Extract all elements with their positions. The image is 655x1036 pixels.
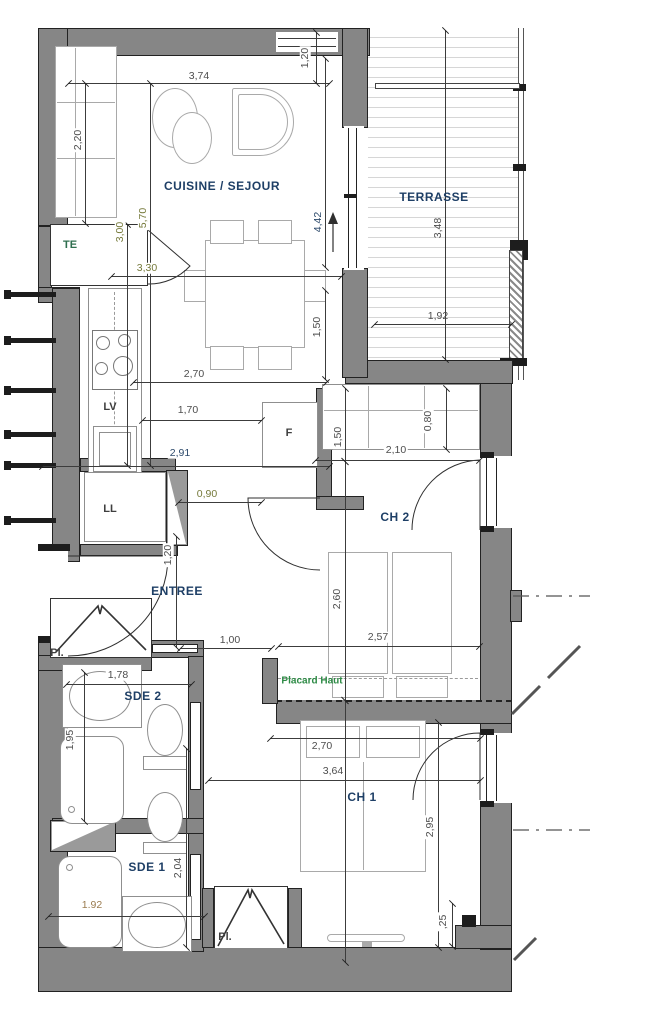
facade-fin-cap — [4, 290, 11, 299]
facade-fin — [8, 292, 56, 297]
sofa-cushion-line — [57, 158, 115, 159]
room-label-entree: ENTREE — [151, 584, 203, 598]
facade-fin-cap — [4, 430, 11, 439]
dim-192-terrasse: 1,92 — [426, 311, 450, 322]
dim-192-sde1: 1.92 — [80, 900, 104, 911]
dim-260: 2,60 — [332, 587, 343, 611]
pillow — [366, 726, 420, 758]
facade-fin — [8, 432, 56, 437]
dim-295: 2,95 — [425, 815, 436, 839]
room-label-sde1: SDE 1 — [128, 860, 165, 874]
dim-374: 3,74 — [187, 71, 211, 82]
toilet-bowl-sde2 — [147, 704, 183, 756]
tv-console — [327, 934, 405, 942]
wall-pl-ch1-right — [288, 888, 302, 948]
section-diagonal-mark — [514, 938, 536, 960]
wall-facade-fins-base — [52, 288, 80, 562]
dim-line-204 — [186, 748, 187, 948]
direction-arrow-head — [328, 212, 338, 224]
dim-570: 5,70 — [138, 206, 149, 230]
burner — [95, 362, 108, 375]
room-label-sde2: SDE 2 — [124, 689, 161, 703]
wall-placard-left-stub — [262, 658, 278, 704]
railing-hatch — [509, 250, 523, 360]
toilet-tank-sde2 — [143, 756, 187, 770]
wardrobe-shelf-line — [324, 410, 478, 411]
room-label-ch1: CH 1 — [347, 790, 376, 804]
room-label-terrasse: TERRASSE — [399, 190, 468, 204]
dim-204: 2,04 — [173, 856, 184, 880]
floor-plan: CUISINE / SEJOUR TERRASSE CH 2 ENTREE SD… — [0, 0, 655, 1036]
window-top-frame — [278, 38, 336, 39]
dim-line-330 — [111, 276, 342, 277]
dim-100: 1,00 — [218, 635, 242, 646]
dim-line-442 — [325, 58, 326, 268]
dim-080: 0,80 — [423, 409, 434, 433]
bed-center-line — [363, 762, 364, 870]
bed-headboard — [396, 676, 448, 698]
label-pl-entree: Pl. — [50, 647, 63, 659]
chair — [210, 346, 244, 370]
window-ch1-frame — [486, 735, 487, 801]
dim-442: 4,42 — [313, 210, 324, 234]
tv-console-foot — [362, 942, 372, 947]
railing-post — [513, 164, 526, 171]
wall-corner-block — [462, 915, 476, 927]
dim-line-192-terrasse — [374, 324, 512, 325]
dim-120-entree: 1,20 — [163, 543, 174, 567]
dim-line-100 — [180, 648, 272, 649]
dim-line-570 — [150, 83, 151, 466]
chair — [210, 220, 244, 244]
entrance-jamb — [38, 544, 70, 551]
pouf — [172, 112, 212, 164]
dim-line-220 — [85, 83, 86, 224]
bed-single — [328, 552, 388, 674]
sofa-cushion-line — [57, 102, 115, 103]
washbasin-sde1 — [128, 902, 186, 948]
wall-corner-step — [455, 925, 512, 949]
bed-single — [392, 552, 452, 674]
room-label-ch2: CH 2 — [380, 510, 409, 524]
wall-ch2-door-stub — [316, 496, 364, 510]
dim-195: 1,95 — [65, 728, 76, 752]
window-ch2-frame — [496, 458, 497, 526]
facade-fin-cap — [4, 386, 11, 395]
dim-257: 2,57 — [366, 632, 390, 643]
terrace-bench — [375, 83, 520, 89]
dim-170: 1,70 — [176, 405, 200, 416]
label-lv: LV — [103, 401, 116, 413]
dim-line-300 — [127, 224, 128, 466]
facade-fin-cap — [4, 461, 11, 470]
burner — [96, 336, 110, 350]
dim-220: 2,20 — [73, 128, 84, 152]
bay-window-frame — [356, 128, 357, 268]
dim-210: 2,10 — [384, 445, 408, 456]
sofa — [55, 46, 117, 218]
dim-line-195 — [84, 672, 85, 822]
facade-fin — [8, 338, 56, 343]
chair — [258, 220, 292, 244]
dim-line-210 — [315, 460, 480, 461]
window-ch2-frame — [486, 458, 487, 526]
wall-pl-ch1-left — [202, 888, 214, 948]
toilet-bowl-sde1 — [147, 792, 183, 842]
shower-drain — [66, 864, 73, 871]
dim-025: ,25 — [438, 913, 449, 932]
window-ch1-stub — [480, 729, 494, 735]
dim-364: 3,64 — [321, 766, 345, 777]
wall-kitchen-terrace-lower — [342, 268, 368, 378]
bay-window-terrace — [344, 126, 364, 270]
dim-line-257 — [278, 646, 480, 647]
wall-kitchen-terrace-upper — [342, 28, 368, 128]
dim-300: 3,00 — [115, 220, 126, 244]
label-te: TE — [63, 239, 77, 251]
window-ch2-stub — [480, 526, 494, 532]
label-ll: LL — [103, 503, 116, 515]
bay-window-frame — [348, 128, 349, 268]
chair — [258, 346, 292, 370]
facade-fin-cap — [4, 516, 11, 525]
pl-entree-closet — [50, 598, 152, 658]
label-f: F — [286, 427, 293, 439]
dim-line-090 — [178, 502, 262, 503]
ch2-door-swing — [248, 498, 320, 570]
wall-right-pilaster — [510, 590, 522, 622]
dim-line-150-table — [325, 290, 326, 380]
dim-line-170 — [142, 420, 262, 421]
dim-330: 3,30 — [135, 263, 159, 274]
pocket-door-sde2 — [190, 702, 201, 790]
dim-291: 2,91 — [168, 448, 192, 459]
shower-drain — [68, 806, 75, 813]
facade-fin — [8, 388, 56, 393]
ch2-window-door-swing — [412, 460, 480, 530]
dim-270-ch1: 2,70 — [310, 741, 334, 752]
dim-line-270-ch1 — [270, 738, 481, 739]
facade-fin — [8, 518, 56, 523]
dim-line-270-table — [133, 382, 327, 383]
dim-line-192-sde1 — [48, 916, 205, 917]
bay-window-sill — [344, 194, 356, 198]
room-label-cuisine-sejour: CUISINE / SEJOUR — [164, 179, 280, 193]
dim-line-364 — [208, 780, 481, 781]
dim-090: 0,90 — [195, 489, 219, 500]
terrace-railing-outer — [523, 28, 524, 380]
dim-270-table: 2,70 — [182, 369, 206, 380]
dim-line-374 — [68, 83, 330, 84]
dim-line-120-top — [316, 32, 317, 84]
dim-line-080 — [446, 388, 447, 450]
wall-bottom — [38, 947, 512, 992]
label-placard-haut: Placard Haut — [281, 676, 342, 687]
toilet-tank-sde1 — [143, 842, 187, 854]
wall-terrace-bottom — [345, 360, 513, 384]
dim-line-291 — [42, 466, 330, 467]
dim-348: 3,48 — [433, 216, 444, 240]
dim-150-table: 1,50 — [312, 315, 323, 339]
section-diagonal-mark — [512, 686, 540, 714]
wardrobe-divider — [368, 386, 369, 448]
window-ch1-stub — [480, 801, 494, 807]
label-pl-ch1: Pl. — [218, 931, 231, 943]
dim-150-ch2: 1,50 — [333, 425, 344, 449]
dim-120-top: 1,20 — [300, 46, 311, 70]
dining-table — [205, 240, 305, 348]
window-ch1-frame — [496, 735, 497, 801]
dim-line-025 — [452, 903, 453, 947]
chair — [184, 270, 206, 302]
dim-178: 1,78 — [106, 670, 130, 681]
facade-fin-cap — [4, 336, 11, 345]
burner — [113, 356, 133, 376]
burner — [118, 334, 131, 347]
section-diagonal-mark — [548, 646, 580, 678]
dim-line-axis-ch2 — [345, 388, 346, 963]
washing-machine — [84, 472, 166, 542]
